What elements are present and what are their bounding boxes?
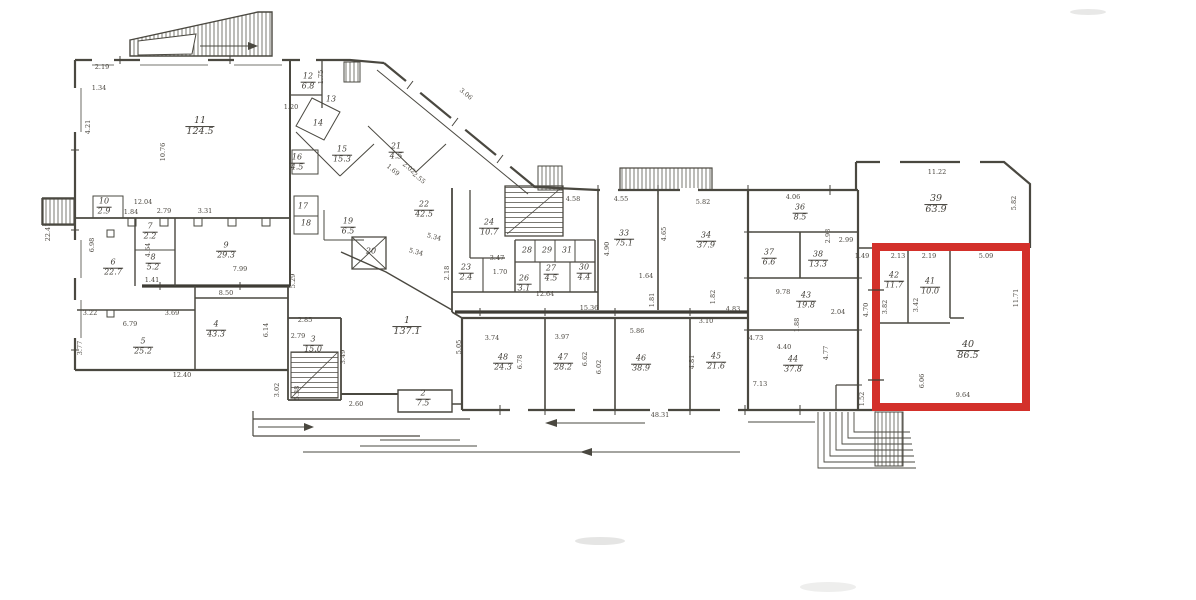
room-label: 1515.3 <box>332 146 352 165</box>
room-area: 21.6 <box>706 363 726 372</box>
room-label: 2410.7 <box>479 219 499 238</box>
room-label: 368.5 <box>793 204 808 223</box>
dimension-label: 1.41 <box>145 276 159 284</box>
dimension-label: 48.31 <box>651 411 670 419</box>
room-label: 376.6 <box>762 249 777 268</box>
dimension-label: 3.97 <box>555 333 569 341</box>
room-number: 13 <box>324 96 338 105</box>
dimension-label: 3.06 <box>458 86 474 101</box>
room-area: 22.7 <box>103 269 123 278</box>
dimension-label: 7.99 <box>233 265 247 273</box>
room-area: 4.5 <box>290 164 305 173</box>
dimension-label: 4.58 <box>566 195 580 203</box>
dimension-label: 3.69 <box>165 309 179 317</box>
room-area: 15.3 <box>332 156 352 165</box>
room-number: 20 <box>364 248 378 257</box>
room-area: 2.2 <box>143 233 158 242</box>
room-label: 4086.5 <box>956 340 979 362</box>
dimension-label: 1.20 <box>284 103 298 111</box>
dimension-label: 1.49 <box>855 252 869 260</box>
dimension-label: 1.82 <box>709 290 717 304</box>
room-area: 4.5 <box>544 275 559 284</box>
room-label: 929.3 <box>216 242 236 261</box>
room-label: 622.7 <box>103 259 123 278</box>
dimension-label: 11.71 <box>1012 289 1020 308</box>
room-label: 20 <box>364 248 378 257</box>
room-area: 5.2 <box>146 264 161 273</box>
dimension-label: 1.64 <box>639 272 653 280</box>
dimension-label: 6.02 <box>595 360 603 374</box>
room-number: 14 <box>311 120 325 129</box>
dimension-label: 4.81 <box>688 355 696 369</box>
room-label: 29 <box>540 247 554 256</box>
dimension-label: 5.38 <box>293 386 301 400</box>
room-label: 274.5 <box>544 265 559 284</box>
dimension-label: 5.82 <box>1010 196 1018 210</box>
dimension-label: 1.75 <box>317 70 325 84</box>
dimension-label: 6.06 <box>918 374 926 388</box>
room-area: 124.5 <box>185 128 214 138</box>
dimension-label: 12.64 <box>536 290 555 298</box>
dimension-label: 2.93 <box>824 229 832 243</box>
room-area: 75.1 <box>614 240 634 249</box>
room-area: 2.9 <box>97 208 112 217</box>
room-area: 11.7 <box>884 282 904 291</box>
dimension-label: 2.99 <box>839 236 853 244</box>
floor-plan-canvas: 1137.127.5315.0443.3525.2622.772.285.292… <box>0 0 1196 600</box>
dimension-label: 12.40 <box>173 371 192 379</box>
dimension-label: 2.18 <box>443 266 451 280</box>
dimension-label: 4.06 <box>786 193 800 201</box>
dimension-label: 3.82 <box>881 300 889 314</box>
dimension-label: 1.84 <box>124 208 138 216</box>
room-label: 4521.6 <box>706 353 726 372</box>
room-label: 3813.3 <box>808 251 828 270</box>
room-label: 14 <box>311 120 325 129</box>
room-label: 3375.1 <box>614 230 634 249</box>
dimension-label: 1.81 <box>648 293 656 307</box>
dimension-label: 1.52 <box>858 392 866 406</box>
dimension-label: 2.19 <box>922 252 936 260</box>
room-number: 17 <box>296 203 310 212</box>
room-label: 525.2 <box>133 338 153 357</box>
room-number: 18 <box>299 220 313 229</box>
room-label: 4638.9 <box>631 355 651 374</box>
dimension-label: 6.62 <box>581 352 589 366</box>
room-area: 10.7 <box>479 229 499 238</box>
dimension-label: 5.09 <box>979 252 993 260</box>
dimension-label: 4.70 <box>862 303 870 317</box>
room-area: 29.3 <box>216 252 236 261</box>
dimension-label: 4.55 <box>614 195 628 203</box>
room-label: 4437.8 <box>783 356 803 375</box>
room-area: 19.8 <box>796 302 816 311</box>
room-label: 13 <box>324 96 338 105</box>
room-number: 29 <box>540 247 554 256</box>
room-area: 86.5 <box>956 352 979 362</box>
dimension-label: 3.31 <box>198 207 212 215</box>
room-area: 6.6 <box>762 259 777 268</box>
dimension-label: 5.29 <box>289 274 297 288</box>
room-area: 8.5 <box>793 214 808 223</box>
dimension-label: 6.98 <box>88 238 96 252</box>
room-label: 28 <box>520 247 534 256</box>
room-label: 72.2 <box>143 223 158 242</box>
dimension-label: 2.04 <box>831 308 845 316</box>
room-area: 10.0 <box>920 288 940 297</box>
dimension-label: 4.65 <box>660 227 668 241</box>
room-label: 2242.5 <box>414 201 434 220</box>
dimension-label: 1.88 <box>793 318 801 332</box>
dimension-label: 15.36 <box>580 304 599 312</box>
room-number: 28 <box>520 247 534 256</box>
dimension-label: 6.14 <box>262 323 270 337</box>
dimension-label: 8.50 <box>219 289 233 297</box>
room-label: 164.5 <box>290 154 305 173</box>
dimension-label: 7.13 <box>753 380 767 388</box>
room-area: 25.2 <box>133 348 153 357</box>
dimension-label: 3.74 <box>485 334 499 342</box>
room-label: 196.5 <box>341 218 356 237</box>
room-area: 6.5 <box>341 228 356 237</box>
dimension-label: 4.73 <box>749 334 763 342</box>
room-area: 4.4 <box>577 274 592 283</box>
room-area: 2.4 <box>459 274 474 283</box>
room-label: 3437.9 <box>696 232 716 251</box>
room-area: 4.5 <box>389 153 404 162</box>
room-label: 18 <box>299 220 313 229</box>
room-area: 43.3 <box>206 331 226 340</box>
room-label: 232.4 <box>459 264 474 283</box>
dimension-label: 4.40 <box>777 343 791 351</box>
room-label: 4211.7 <box>884 272 904 291</box>
dimension-label: 11.22 <box>928 168 947 176</box>
room-area: 28.2 <box>553 364 573 373</box>
dimension-label: 2.13 <box>891 252 905 260</box>
room-area: 37.8 <box>783 366 803 375</box>
dimension-label: 2.55 <box>411 170 427 185</box>
room-label: 443.3 <box>206 321 226 340</box>
room-label: 4319.8 <box>796 292 816 311</box>
dimension-label: 1.34 <box>92 84 106 92</box>
room-label: 304.4 <box>577 264 592 283</box>
dimension-label: 10.76 <box>159 143 167 162</box>
dimension-label: 2.19 <box>95 63 109 71</box>
dimension-label: 2.79 <box>157 207 171 215</box>
dimension-label: 3.02 <box>273 383 281 397</box>
dimension-label: 4.77 <box>822 346 830 360</box>
dimension-label: 3.47 <box>490 254 504 262</box>
room-area: 6.8 <box>301 83 316 92</box>
dimension-label: 3.10 <box>699 317 713 325</box>
dimension-label: 6.78 <box>516 355 524 369</box>
room-label: 263.1 <box>517 275 532 294</box>
labels-layer: 1137.127.5315.0443.3525.2622.772.285.292… <box>0 0 1196 600</box>
room-label: 11124.5 <box>185 116 214 138</box>
room-label: 4728.2 <box>553 354 573 373</box>
dimension-label: 5.82 <box>696 198 710 206</box>
room-area: 7.5 <box>416 400 431 409</box>
room-label: 126.8 <box>301 73 316 92</box>
dimension-label: 9.78 <box>776 288 790 296</box>
dimension-label: 4.90 <box>603 242 611 256</box>
dimension-label: 5.86 <box>630 327 644 335</box>
room-area: 13.3 <box>808 261 828 270</box>
room-label: 102.9 <box>97 198 112 217</box>
dimension-label: 9.64 <box>956 391 970 399</box>
room-area: 63.9 <box>924 206 947 216</box>
dimension-label: 3.22 <box>83 309 97 317</box>
dimension-label: 22.41 <box>44 223 52 242</box>
dimension-label: 5.34 <box>426 231 442 242</box>
dimension-label: 5.05 <box>455 340 463 354</box>
dimension-label: 5.34 <box>408 246 424 257</box>
dimension-label: 4.83 <box>726 305 740 313</box>
dimension-label: 1.69 <box>385 162 401 177</box>
room-label: 315.0 <box>303 336 323 355</box>
dimension-label: 1.70 <box>493 268 507 276</box>
room-area: 3.1 <box>517 285 532 294</box>
room-label: 4110.0 <box>920 278 940 297</box>
dimension-label: 2.79 <box>291 332 305 340</box>
room-area: 137.1 <box>392 328 421 338</box>
room-label: 31 <box>560 247 574 256</box>
dimension-label: 3.42 <box>912 298 920 312</box>
room-label: 17 <box>296 203 310 212</box>
dimension-label: 3.77 <box>76 341 84 355</box>
room-area: 37.9 <box>696 242 716 251</box>
room-area: 24.3 <box>493 364 513 373</box>
room-number: 31 <box>560 247 574 256</box>
room-label: 4824.3 <box>493 354 513 373</box>
room-area: 42.5 <box>414 211 434 220</box>
dimension-label: 3.49 <box>339 350 347 364</box>
room-label: 214.5 <box>389 143 404 162</box>
room-label: 3963.9 <box>924 194 947 216</box>
dimension-label: 4.64 <box>144 243 152 257</box>
dimension-label: 2.60 <box>349 400 363 408</box>
dimension-label: 12.04 <box>134 198 153 206</box>
room-area: 38.9 <box>631 365 651 374</box>
dimension-label: 2.85 <box>298 316 312 324</box>
dimension-label: 4.21 <box>84 120 92 134</box>
room-label: 1137.1 <box>392 316 421 338</box>
room-label: 27.5 <box>416 390 431 409</box>
room-area: 15.0 <box>303 346 323 355</box>
dimension-label: 6.79 <box>123 320 137 328</box>
